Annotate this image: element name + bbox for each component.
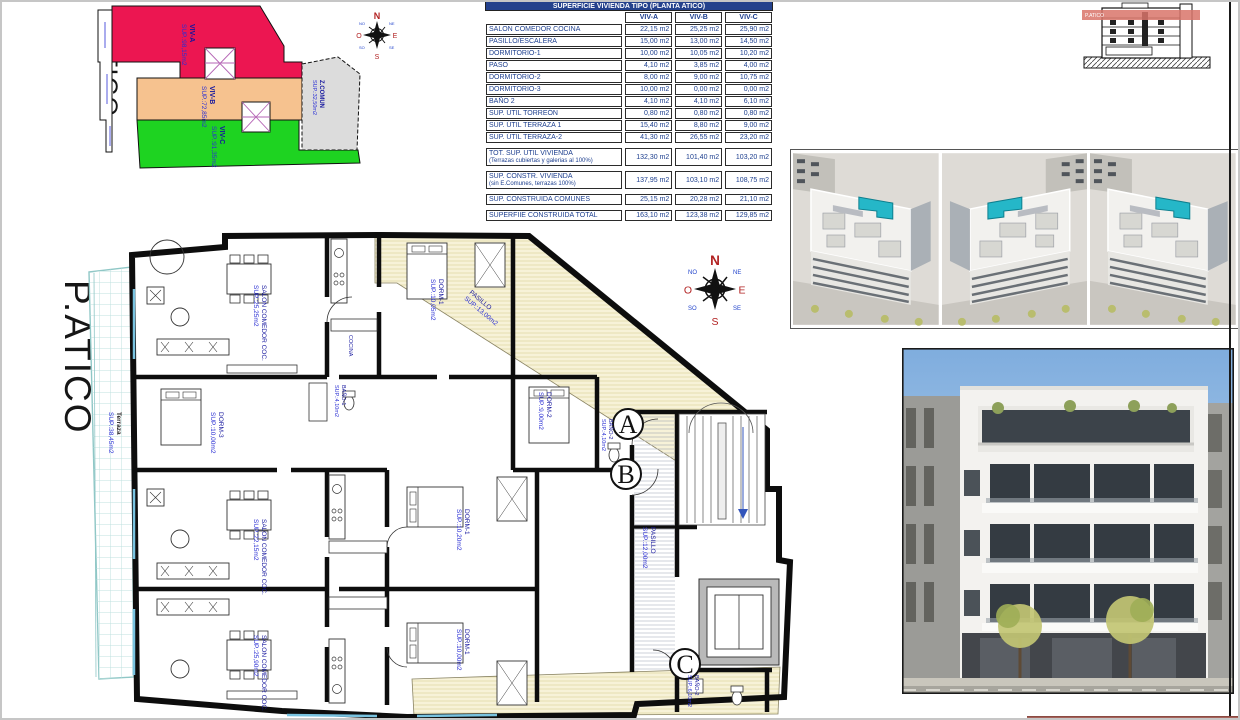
zone-viv-b: [137, 78, 302, 120]
svg-text:SUP.:10,00m2: SUP.:10,00m2: [209, 412, 216, 454]
svg-text:VIV-A: VIV-A: [188, 24, 195, 42]
sidewalk: [902, 678, 1234, 686]
table-row: PASO4,10 m23,85 m24,00 m2: [486, 60, 772, 71]
aerial-render-strip: [790, 149, 1239, 329]
table-summary-row: SUPERFIIE CONSTRUIDA TOTAL 163,10 m2123,…: [486, 210, 772, 221]
main-building: [960, 386, 1208, 678]
table-row: DORMITORIO-310,00 m20,00 m20,00 m2: [486, 84, 772, 95]
entry-a: A: [619, 410, 638, 439]
table-row: SUP. ÚTIL TORREÓN0,80 m20,80 m20,80 m2: [486, 108, 772, 119]
zone-comun: [302, 57, 360, 150]
aerial-render-1: [793, 152, 939, 326]
lift-core-marker: [242, 102, 270, 132]
svg-text:SUP.:32,50m2: SUP.:32,50m2: [311, 80, 317, 115]
surface-area-table: SUPERFICIE VIVIENDA TIPO (PLANTA ATICO) …: [483, 2, 775, 222]
facade-render: [902, 348, 1234, 694]
svg-text:COCINA: COCINA: [347, 335, 353, 357]
svg-text:SUP.:25,25m2: SUP.:25,25m2: [252, 285, 259, 327]
elevator: [699, 579, 779, 665]
entry-b: B: [617, 460, 634, 489]
svg-text:DORM-3: DORM-3: [217, 412, 224, 438]
attic-band-label: P.ATICO: [1085, 13, 1104, 19]
aerial-render-2: [942, 152, 1088, 326]
stair-core-marker: [205, 48, 235, 79]
col-viv-c: VIV-C: [725, 12, 772, 23]
sheet-border-line: [1229, 2, 1231, 720]
svg-text:SUP.:25,90m2: SUP.:25,90m2: [252, 635, 259, 677]
aerial-render-3: [1090, 152, 1236, 326]
svg-text:SUP.:4,10m2: SUP.:4,10m2: [333, 385, 339, 417]
table-row: BAÑO 24,10 m24,10 m26,10 m2: [486, 96, 772, 107]
svg-text:BAÑO-2: BAÑO-2: [607, 419, 614, 439]
torreon-column: [150, 240, 184, 274]
table-summary-row: TOT. SUP. UTIL VIVIENDA(Terrazas cubiert…: [486, 148, 772, 166]
svg-text:SUP.:22,15m2: SUP.:22,15m2: [252, 519, 259, 561]
table-row: SUP. ÚTIL TERRAZA-241,30 m226,55 m223,20…: [486, 132, 772, 143]
building-section-drawing: P.ATICO: [1082, 2, 1214, 72]
svg-text:VIV-B: VIV-B: [208, 86, 215, 104]
svg-text:SUP.:98,15m2: SUP.:98,15m2: [180, 24, 187, 66]
table-row: DORMITORIO-28,00 m29,00 m210,75 m2: [486, 72, 772, 83]
svg-text:SUP.:4,10m2: SUP.:4,10m2: [600, 419, 606, 451]
svg-text:SALON COMEDOR COC.: SALON COMEDOR COC.: [260, 519, 267, 595]
svg-text:SALON COMEDOR COC.: SALON COMEDOR COC.: [260, 635, 267, 711]
table-row: DORMITORIO-110,00 m210,05 m210,20 m2: [486, 48, 772, 59]
svg-text:BAÑO-1: BAÑO-1: [340, 385, 347, 405]
table-summary-row: SUP. CONSTR. VIVIENDA(sin E.Comunes, ter…: [486, 171, 772, 189]
svg-text:SUP.:10,05m2: SUP.:10,05m2: [429, 279, 436, 321]
svg-text:PASILLO: PASILLO: [649, 527, 656, 554]
svg-text:DORM-2: DORM-2: [545, 392, 552, 418]
ground-hatch: [1084, 57, 1210, 68]
neighbor-building-left: [902, 396, 964, 686]
table-summary-row: SUP. CONSTRUIDA COMUNES 25,15 m220,28 m2…: [486, 194, 772, 205]
table-header-row: VIV-A VIV-B VIV-C: [486, 12, 772, 23]
site-compass: [356, 11, 397, 61]
svg-text:SALON COMEDOR COC.: SALON COMEDOR COC.: [260, 285, 267, 361]
svg-text:SUP.:72,85m2: SUP.:72,85m2: [200, 86, 207, 128]
svg-text:DORM-1: DORM-1: [463, 509, 470, 535]
table-row: PASILLO/ESCALERA15,00 m213,00 m214,50 m2: [486, 36, 772, 47]
table-title: SUPERFICIE VIVIENDA TIPO (PLANTA ATICO): [485, 2, 773, 11]
plan-compass: [684, 253, 746, 328]
site-zoning-diagram: N E S O NE SE SO NO P.ATICO: [62, 2, 402, 187]
col-viv-b: VIV-B: [675, 12, 722, 23]
svg-text:BAÑO-2: BAÑO-2: [693, 675, 700, 695]
drawing-sheet: N E S O NE SE SO NO P.ATICO: [0, 0, 1240, 720]
svg-text:SUP.:10,00m2: SUP.:10,00m2: [455, 629, 462, 671]
svg-text:DORM-1: DORM-1: [437, 279, 444, 305]
svg-text:VIV-C: VIV-C: [218, 126, 225, 144]
svg-text:SUP.:12,00m2: SUP.:12,00m2: [641, 527, 648, 569]
terrace-lower-cream: [412, 667, 780, 716]
col-viv-a: VIV-A: [625, 12, 672, 23]
svg-text:DORM-1: DORM-1: [463, 629, 470, 655]
svg-text:SUP.:9,00m2: SUP.:9,00m2: [537, 392, 544, 430]
svg-text:Z.COMUN: Z.COMUN: [318, 80, 324, 108]
svg-text:SUP.:6,10m2: SUP.:6,10m2: [686, 675, 692, 707]
svg-text:SUP.:91,35m2: SUP.:91,35m2: [210, 126, 217, 168]
floor-plan: A B C TerrazaSUP.:38,45m2 SALON COMEDOR …: [77, 227, 797, 720]
table-row: SALON COMEDOR COCINA22,15 m225,25 m225,9…: [486, 24, 772, 35]
pier-windows: [964, 470, 980, 616]
titleblock-top-edge: [1027, 716, 1240, 720]
table-row: SUP. ÚTIL TERRAZA 115,40 m28,80 m29,00 m…: [486, 120, 772, 131]
svg-text:SUP.:10,20m2: SUP.:10,20m2: [455, 509, 462, 551]
stairwell: [679, 403, 765, 525]
svg-text:Terraza: Terraza: [115, 412, 122, 435]
svg-text:SUP.:38,45m2: SUP.:38,45m2: [107, 412, 114, 454]
